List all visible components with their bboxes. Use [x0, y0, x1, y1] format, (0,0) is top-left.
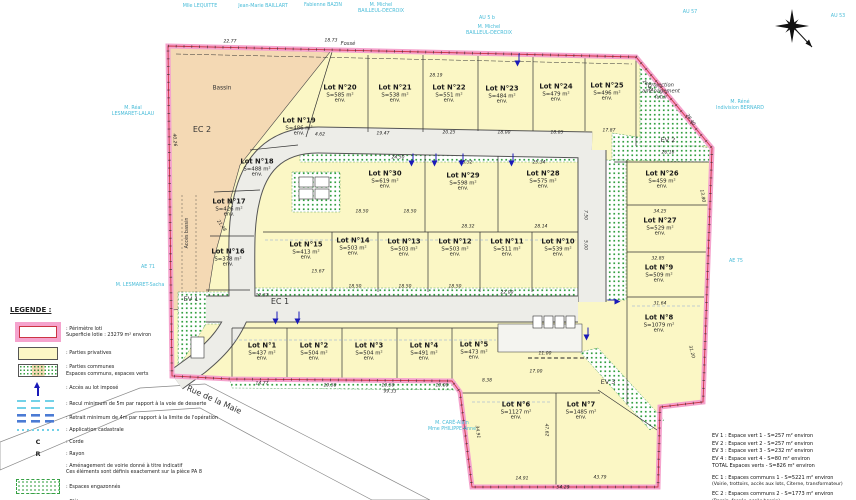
- area-label: EV 1: [184, 296, 199, 304]
- summary-line: EV 2 : Espace vert 2 - S=257 m² environ: [712, 441, 843, 449]
- legend-rows: : Périmètre lotiSuperficie lotie : 23279…: [10, 322, 225, 500]
- private-legend-icon: [18, 347, 58, 360]
- legend-icon-cell: [10, 364, 66, 377]
- area-label: EC 2: [193, 125, 211, 135]
- dimension-label: 28.32: [462, 225, 475, 230]
- legend-icon-cell: [10, 382, 66, 396]
- dimension-label: 32.85: [652, 257, 665, 262]
- legend-icon-cell: R: [10, 450, 66, 458]
- dimension-label: 19.47: [377, 132, 390, 137]
- lot-access-arrow-icon: [515, 54, 524, 67]
- owner-label: AU 57: [683, 10, 697, 16]
- legend-label: : Aménagement de voirie donné à titre in…: [66, 463, 202, 475]
- legend-label-2: Espaces communs, espaces verts: [66, 371, 148, 377]
- recul-legend-icon: [17, 400, 59, 409]
- legend-row: : Accès au lot imposé: [10, 382, 225, 396]
- lot-access-arrow-icon: [608, 296, 621, 305]
- owner-label: AE 75: [729, 259, 743, 265]
- dimension-label: 26.16: [662, 151, 675, 156]
- dimension-label: 22.00: [501, 291, 514, 296]
- dimension-label: 18.50: [404, 210, 417, 215]
- dimension-label: 19.50: [324, 384, 337, 389]
- summary-line: EC 1 : Espaces communs 1 - S=5221 m² env…: [712, 475, 843, 483]
- area-label: Bassin: [213, 86, 232, 93]
- dimension-label: 18.50: [349, 285, 362, 290]
- dimension-label: 40.26: [171, 133, 177, 146]
- legend-row: R: Rayon: [10, 450, 225, 458]
- legend-row: : Aménagement de voirie donné à titre in…: [10, 463, 225, 475]
- dimension-label: 28.14: [535, 225, 548, 230]
- legend-row: : Recul minimum de 5m par rapport à la v…: [10, 400, 225, 409]
- dimension-label: 4.62: [315, 133, 325, 138]
- owner-label: Jean-Marie BAILLART: [238, 4, 288, 10]
- dimension-label: 5.00: [583, 240, 588, 250]
- lot-access-arrow-icon: [273, 312, 282, 325]
- legend-row: : Espaces engazonnés: [10, 479, 225, 494]
- dimension-label: 17.00: [530, 370, 543, 375]
- legend-label-2: Ces éléments sont définis exactement sur…: [66, 469, 202, 475]
- legend-row: : Périmètre lotiSuperficie lotie : 23279…: [10, 322, 225, 342]
- dimension-label: 22.77: [224, 40, 237, 45]
- summary-group: EC 1 : Espaces communs 1 - S=5221 m² env…: [712, 475, 843, 488]
- owner-label: AE 71: [141, 265, 155, 271]
- dimension-label: 18.50: [449, 285, 462, 290]
- legend-label: : Périmètre lotiSuperficie lotie : 23279…: [66, 326, 151, 338]
- legend-label: : Espaces engazonnés: [66, 484, 120, 490]
- legend-label: : Corde: [66, 439, 84, 445]
- legend-icon-cell: C: [10, 438, 66, 446]
- dimension-label: 47.62: [543, 423, 548, 436]
- summary-line: EV 4 : Espace vert 4 - S=80 m² environ: [712, 456, 843, 464]
- legend-label: : Application cadastrale: [66, 427, 124, 433]
- legend-label: : Rayon: [66, 451, 84, 457]
- lot-access-arrow-icon: [295, 312, 304, 325]
- dimension-label: 18.73: [325, 39, 338, 44]
- summary-line: TOTAL Espaces verts - S=826 m² environ: [712, 463, 843, 471]
- legend-row: : Parties communesEspaces communs, espac…: [10, 364, 225, 377]
- area-label: Fossé: [341, 41, 356, 47]
- owner-label: Fabienne BAZIN: [304, 3, 342, 9]
- north-arrow-icon: [775, 9, 812, 47]
- dimension-label: 18.50: [399, 285, 412, 290]
- subdivision-plan: Lot N°1S=437 m²env.Lot N°2S=504 m²env.Lo…: [0, 0, 856, 500]
- area-label: EC 1: [271, 297, 289, 307]
- dimension-label: 99.33: [384, 390, 397, 395]
- lot-access-arrow-icon: [409, 154, 418, 167]
- R-legend-icon: R: [35, 450, 40, 458]
- legend-row: : Parties privatives: [10, 347, 225, 360]
- owner-label: M. Réné Indivision BERNARD: [716, 100, 764, 112]
- dimension-label: 20.25: [443, 131, 456, 136]
- dimension-label: 17.87: [603, 129, 616, 134]
- summary-line: EV 1 : Espace vert 1 - S=257 m² environ: [712, 433, 843, 441]
- owner-label: M. LESMARET-Sacha: [116, 283, 165, 289]
- owner-label: AU 53: [831, 14, 845, 20]
- dimension-label: 14.77: [256, 382, 269, 387]
- owner-label: M. Réal LESMARET-LALAU: [112, 106, 154, 118]
- areas-summary: EV 1 : Espace vert 1 - S=257 m² environE…: [712, 433, 843, 500]
- dimension-label: 28.19: [430, 74, 443, 79]
- legend-icon-cell: [10, 414, 66, 423]
- summary-line: EV 3 : Espace vert 3 - S=232 m² environ: [712, 448, 843, 456]
- owner-label: M. Michel BAILLEUL-DECROIX: [358, 3, 404, 15]
- C-legend-icon: C: [36, 438, 41, 446]
- legend-icon-cell: [10, 479, 66, 494]
- dimension-label: 18.05: [551, 131, 564, 136]
- dimension-label: 24.50: [392, 156, 405, 161]
- legend-icon-cell: [10, 322, 66, 342]
- none-legend-icon: [17, 468, 59, 469]
- area-label: EV 3: [601, 379, 616, 387]
- dimension-label: 43.79: [594, 476, 607, 481]
- legend-label: : Recul minimum de 5m par rapport à la v…: [66, 401, 206, 407]
- legend-label: : Accès au lot imposé: [66, 385, 118, 391]
- legend-label-2: Superficie lotie : 23279 m² environ: [66, 332, 151, 338]
- legend-icon-cell: [10, 468, 66, 469]
- legend-title: LEGENDE :: [10, 306, 225, 314]
- dimension-label: 19.00: [436, 384, 449, 389]
- cadastre-legend-icon: [17, 429, 59, 431]
- grass-legend-icon: [16, 479, 60, 494]
- dimension-label: 8.38: [482, 379, 492, 384]
- owner-label: AU 5 b: [479, 16, 495, 22]
- legend-panel: LEGENDE : : Périmètre lotiSuperficie lot…: [10, 306, 225, 500]
- lot-access-arrow-icon: [459, 154, 468, 167]
- lot-access-arrow-icon: [509, 154, 518, 167]
- owner-label: Mlle LEQUITTE: [183, 4, 218, 10]
- summary-line: EC 2 : Espaces communs 2 - S=1773 m² env…: [712, 491, 843, 499]
- retrait-legend-icon: [17, 414, 59, 423]
- lot-access-arrow-icon: [432, 154, 441, 167]
- dimension-label: 25.34: [533, 161, 546, 166]
- legend-row: : Application cadastrale: [10, 427, 225, 433]
- dimension-label: 34.25: [654, 210, 667, 215]
- dimension-label: 7.50: [583, 210, 588, 220]
- legend-label: : Retrait minimum de 4m par rapport à la…: [66, 415, 218, 421]
- dimension-label: 15.67: [312, 270, 325, 275]
- legend-label: : Parties privatives: [66, 350, 111, 356]
- owner-label: M. Michel BAILLEUL-DECROIX: [466, 25, 512, 37]
- arrow-legend-icon: [33, 382, 43, 396]
- dimension-label: 12.37: [256, 294, 269, 299]
- dimension-label: 18.50: [356, 210, 369, 215]
- legend-icon-cell: [10, 347, 66, 360]
- perimeter-legend-icon: [15, 322, 61, 342]
- legend-label: : Parties communesEspaces communs, espac…: [66, 364, 148, 376]
- dimension-label: 18.00: [498, 131, 511, 136]
- legend-row: C: Corde: [10, 438, 225, 446]
- legend-icon-cell: [10, 429, 66, 431]
- common-legend-icon: [18, 364, 58, 377]
- area-label: EV 2: [661, 137, 676, 145]
- dimension-label: 14.91: [516, 477, 529, 482]
- dimension-label: 11.00: [539, 352, 552, 357]
- dimension-label: 31.64: [654, 302, 667, 307]
- dimension-label: 54.29: [557, 486, 570, 491]
- summary-group: EC 2 : Espaces communs 2 - S=1773 m² env…: [712, 491, 843, 500]
- summary-subline: (Voirie, trottoirs, accès aux lots, Cite…: [712, 482, 843, 487]
- owner-label: M. CARÉ-Alain Mme PHILIPPE-Anne: [428, 421, 476, 433]
- dimension-label: 19.50: [382, 384, 395, 389]
- legend-row: : Retrait minimum de 4m par rapport à la…: [10, 414, 225, 423]
- legend-icon-cell: [10, 400, 66, 409]
- lot-access-arrow-icon: [584, 328, 593, 341]
- area-label: Accès bassin: [185, 218, 191, 249]
